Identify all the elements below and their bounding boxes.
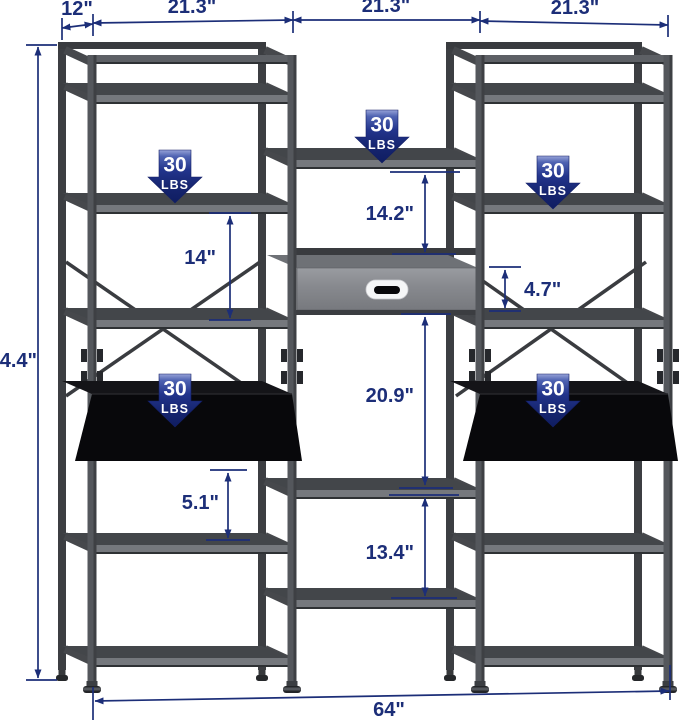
dim-total-height: 74.4" <box>0 45 57 680</box>
back-feet <box>56 670 644 681</box>
diagram-canvas: 30 LBS 30 LBS 30 LBS 30 LBS 30 LBS 12" 2… <box>0 0 679 720</box>
dim-drawer-shelf-label: 20.9" <box>366 385 414 407</box>
badge-value: 30 <box>163 154 186 177</box>
dim-desk-to-shelf: 5.1" <box>182 470 250 540</box>
dim-total-width: 64" <box>93 665 670 720</box>
dim-left-shelf-label: 14" <box>184 247 216 269</box>
dim-shelf-drawer-label: 14.2" <box>366 203 414 225</box>
dim-right-width-label: 21.3" <box>551 0 599 19</box>
badge-value: 30 <box>163 378 186 401</box>
shelf <box>62 533 296 554</box>
dim-depth-label: 12" <box>61 0 93 20</box>
badge-unit: LBS <box>161 402 189 416</box>
dim-middle-width-label: 21.3" <box>362 0 410 17</box>
dim-total-width-label: 64" <box>373 699 405 720</box>
dim-drawer-height-label: 4.7" <box>524 279 561 301</box>
shelf <box>62 83 296 104</box>
badge-unit: LBS <box>368 138 396 152</box>
dim-lower-shelf-label: 13.4" <box>366 542 414 564</box>
shelf <box>62 308 296 329</box>
badge-unit: LBS <box>539 402 567 416</box>
dim-shelf-to-drawer: 14.2" <box>366 172 460 254</box>
badge-unit: LBS <box>161 178 189 192</box>
back-posts <box>58 42 642 670</box>
front-feet <box>83 681 677 693</box>
top-back-bars <box>58 42 642 49</box>
bookshelf-dimension-diagram: 30 LBS 30 LBS 30 LBS 30 LBS 30 LBS 12" 2… <box>0 0 679 720</box>
shelf <box>62 646 296 667</box>
badge-unit: LBS <box>539 184 567 198</box>
dim-left-width-label: 21.3" <box>168 0 216 18</box>
dim-drawer-to-shelf: 20.9" <box>366 314 453 488</box>
dim-lower-shelf-spacing: 13.4" <box>366 495 459 598</box>
dim-total-height-label: 74.4" <box>0 350 37 372</box>
dim-left-shelf-spacing: 14" <box>184 213 251 320</box>
badge-value: 30 <box>541 378 564 401</box>
dim-drawer-height: 4.7" <box>489 267 561 311</box>
badge-value: 30 <box>370 114 393 137</box>
drawer <box>267 248 484 315</box>
badge-value: 30 <box>541 160 564 183</box>
top-front-bars <box>88 55 672 64</box>
dim-top-widths: 12" 21.3" 21.3" 21.3" <box>61 0 668 40</box>
dim-desk-shelf-label: 5.1" <box>182 492 219 514</box>
drawer-handle <box>366 280 408 299</box>
